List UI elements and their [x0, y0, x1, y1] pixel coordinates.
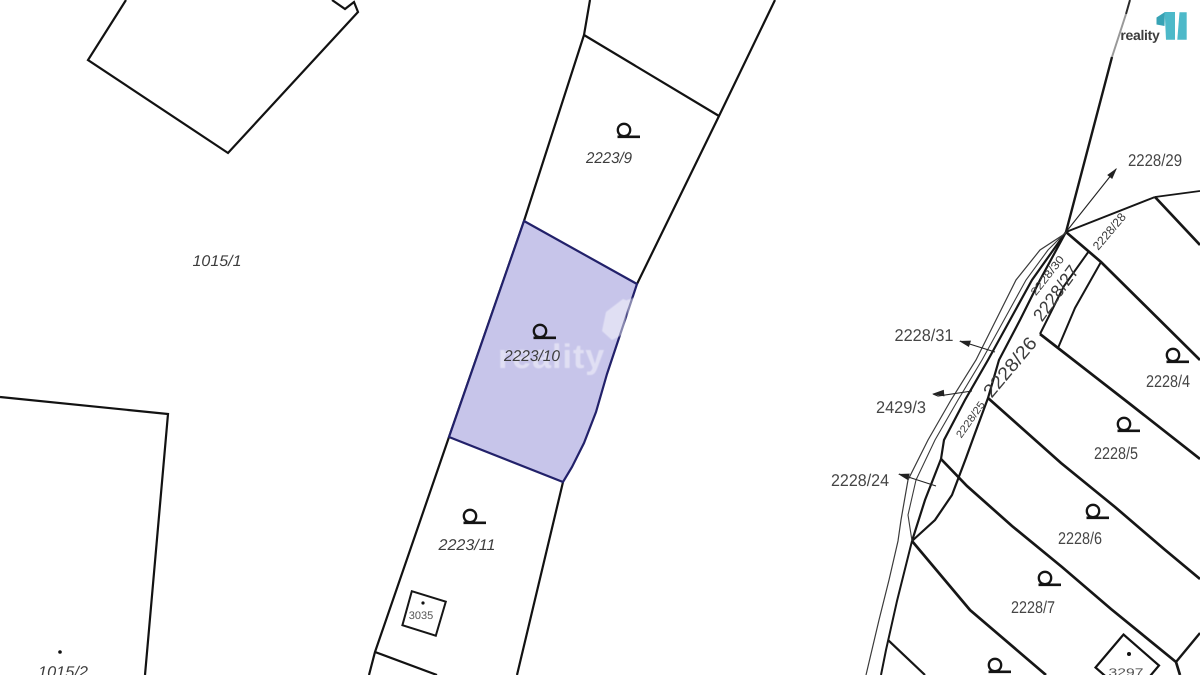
svg-text:1015/1: 1015/1 [193, 253, 242, 270]
svg-text:3297: 3297 [1109, 667, 1144, 675]
svg-text:2228/5: 2228/5 [1094, 444, 1138, 463]
svg-text:2228/6: 2228/6 [1058, 529, 1102, 548]
svg-text:2228/4: 2228/4 [1146, 372, 1190, 391]
svg-text:2228/7: 2228/7 [1011, 598, 1055, 617]
svg-text:2228/31: 2228/31 [895, 326, 954, 345]
svg-text:2429/3: 2429/3 [876, 398, 926, 417]
svg-text:2223/11: 2223/11 [437, 537, 495, 554]
svg-text:2223/9: 2223/9 [585, 150, 632, 167]
svg-text:3035: 3035 [409, 610, 433, 622]
svg-text:2223/10: 2223/10 [503, 348, 560, 365]
svg-text:reality: reality [1120, 27, 1160, 43]
svg-text:1015/2: 1015/2 [38, 664, 88, 675]
svg-text:2228/29: 2228/29 [1128, 151, 1182, 170]
svg-text:2228/24: 2228/24 [831, 471, 889, 490]
